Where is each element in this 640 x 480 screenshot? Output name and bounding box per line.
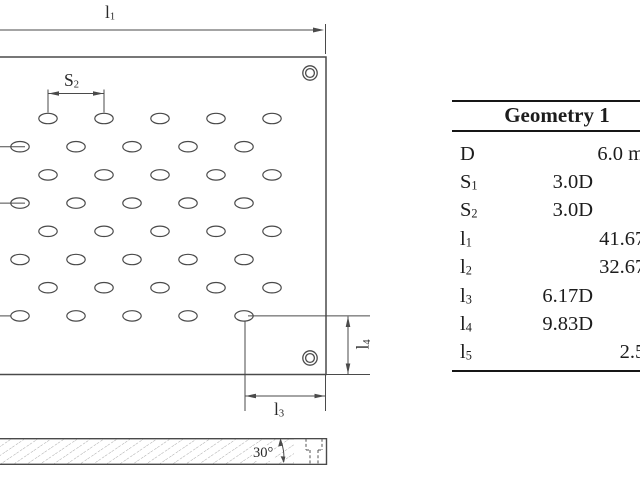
chamfer-angle-label: 30° (252, 446, 274, 461)
table-row: D 6.0 mm (0, 144, 640, 172)
l1-dimension-label: l1 (105, 4, 115, 23)
table-header-rule (452, 130, 640, 131)
relative-value: 3.0D (470, 200, 593, 221)
l3-dimension-label: l3 (274, 401, 284, 420)
table-row: l5 2.5D (0, 342, 640, 370)
table-row: l1 41.67D (0, 229, 640, 257)
l1-dimension (0, 24, 326, 54)
table-title: Geometry 1 (452, 105, 640, 126)
table-row: l3 6.17D (0, 286, 640, 314)
relative-value: 9.83D (470, 314, 593, 335)
cross-section-view (0, 439, 327, 465)
table-row: S2 3.0D (0, 200, 640, 228)
absolute-value: 6.0 mm (535, 144, 640, 165)
engineering-drawing-page: l1 S2 l3 l4 30° Geometry 1 D 6.0 mm S1 3… (0, 0, 640, 480)
table-top-rule (452, 100, 640, 103)
absolute-value: 32.67D (535, 257, 640, 278)
table-row: S1 3.0D (0, 172, 640, 200)
param-symbol: D (460, 144, 475, 165)
relative-value: 6.17D (470, 286, 593, 307)
param-symbol: l2 (460, 257, 472, 278)
param-symbol: l5 (460, 342, 472, 363)
table-row: l4 9.83D (0, 314, 640, 342)
absolute-value: 41.67D (535, 229, 640, 250)
absolute-value: 2.5D (535, 342, 640, 363)
table-bottom-rule (452, 370, 640, 373)
param-symbol: l1 (460, 229, 472, 250)
table-row: l2 32.67D (0, 257, 640, 285)
s2-dimension-label: S2 (64, 72, 79, 91)
relative-value: 3.0D (470, 172, 593, 193)
